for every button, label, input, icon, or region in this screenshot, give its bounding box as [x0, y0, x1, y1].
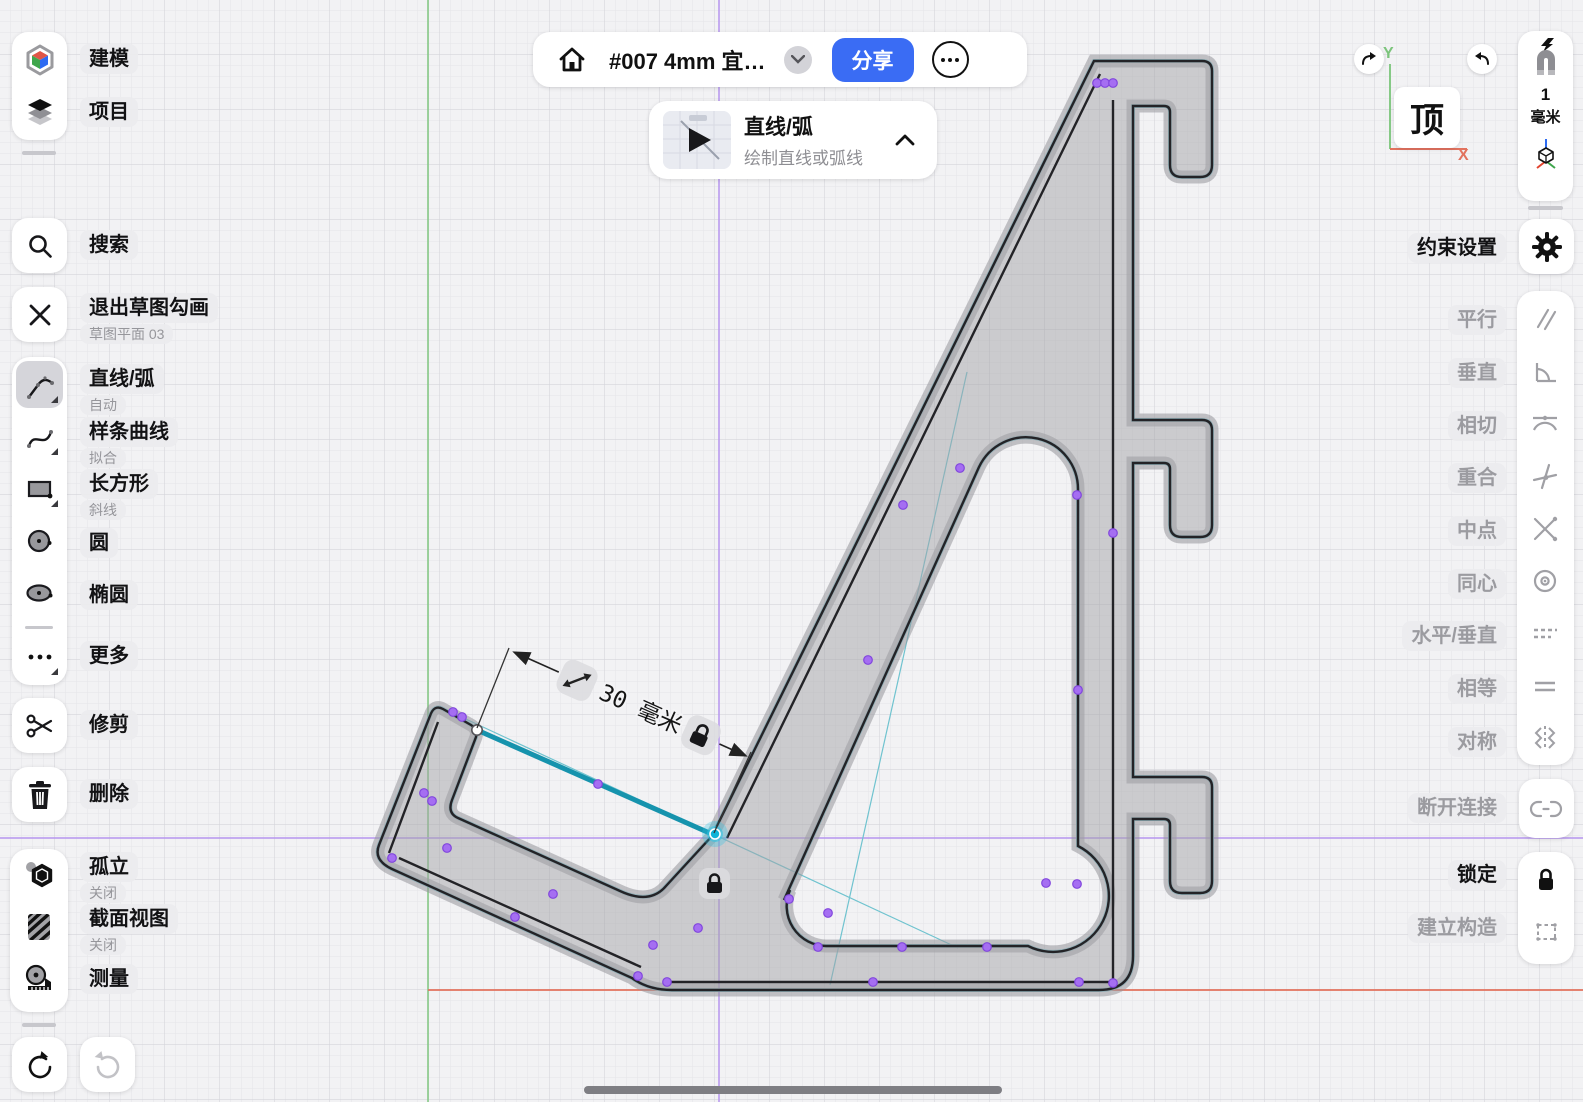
- constraint-label-coincident[interactable]: 重合: [1448, 463, 1506, 493]
- tool-video-thumbnail[interactable]: [663, 111, 731, 169]
- exit-sketch-label: 退出草图勾画: [80, 293, 218, 323]
- collapse-hint-icon[interactable]: [895, 134, 915, 146]
- horizontal-vertical-constraint-icon[interactable]: [1530, 618, 1560, 648]
- trim-button[interactable]: [12, 698, 67, 753]
- line-arc-label: 直线/弧: [80, 364, 164, 394]
- isolate-button[interactable]: [12, 849, 66, 901]
- modeling-label: 建模: [80, 44, 138, 74]
- axis-orientation-icon[interactable]: [1530, 137, 1562, 171]
- rotate-plane-ccw-button[interactable]: [1467, 44, 1497, 74]
- document-title[interactable]: #007 4mm 宜…: [609, 44, 766, 76]
- hint-tool-description: 绘制直线或弧线: [744, 144, 863, 169]
- delete-button[interactable]: [12, 767, 67, 822]
- close-icon: [27, 302, 53, 328]
- constraint-label-symmetric[interactable]: 对称: [1448, 727, 1506, 757]
- line-endpoint-selected[interactable]: [702, 821, 728, 847]
- measure-label: 测量: [80, 964, 138, 994]
- symmetric-constraint-icon[interactable]: [1530, 723, 1560, 753]
- constraint-label-equal[interactable]: 相等: [1448, 674, 1506, 704]
- circle-label: 圆: [80, 528, 118, 558]
- measure-tape-icon: [22, 962, 56, 996]
- rotate-ccw-icon: [1473, 51, 1491, 67]
- concentric-constraint-icon[interactable]: [1530, 566, 1560, 596]
- constraint-label-concentric[interactable]: 同心: [1448, 569, 1506, 599]
- isolate-label-group: 孤立 关闭: [80, 852, 138, 903]
- measure-button[interactable]: [12, 953, 66, 1005]
- isolate-icon: [21, 857, 57, 893]
- construction-label[interactable]: 建立构造: [1408, 913, 1506, 943]
- projects-button[interactable]: [12, 85, 67, 140]
- ellipse-icon: [23, 576, 57, 610]
- more-label: 更多: [80, 641, 138, 671]
- tool-variants-indicator: [51, 668, 58, 675]
- modeling-cube-icon: [22, 42, 58, 78]
- home-icon[interactable]: [557, 45, 587, 75]
- rotate-cw-icon: [1360, 51, 1378, 67]
- gear-icon: [1531, 231, 1563, 263]
- undo-icon: [23, 1048, 57, 1082]
- redo-button[interactable]: [80, 1037, 135, 1092]
- section-view-button[interactable]: [12, 901, 66, 953]
- view-orientation-cube[interactable]: 顶: [1394, 87, 1460, 148]
- rectangle-sublabel: 斜线: [80, 500, 126, 520]
- undo-button[interactable]: [12, 1037, 67, 1092]
- search-icon: [25, 231, 55, 261]
- spline-tool-button[interactable]: [16, 413, 63, 460]
- snap-magnet-icon[interactable]: [1528, 37, 1564, 77]
- title-dropdown-button[interactable]: [784, 46, 812, 74]
- snap-settings-panel: 1 毫米: [1518, 31, 1573, 201]
- spline-label-group: 样条曲线 拟合: [80, 417, 178, 468]
- rectangle-label: 长方形: [80, 469, 158, 499]
- trash-icon: [25, 779, 55, 811]
- spline-label: 样条曲线: [80, 417, 178, 447]
- lock-button[interactable]: [1520, 856, 1572, 904]
- gizmo-x-label: X: [1458, 147, 1469, 164]
- constraint-settings-button[interactable]: [1519, 219, 1574, 274]
- scissors-icon: [24, 710, 56, 742]
- projects-label: 项目: [80, 97, 138, 127]
- disconnect-button[interactable]: [1519, 779, 1574, 838]
- construction-button[interactable]: [1520, 908, 1572, 956]
- rectangle-label-group: 长方形 斜线: [80, 469, 158, 520]
- section-view-state: 关闭: [80, 935, 126, 955]
- constraint-label-tangent[interactable]: 相切: [1448, 411, 1506, 441]
- isolate-label: 孤立: [80, 852, 138, 882]
- share-button[interactable]: 分享: [832, 38, 914, 82]
- tool-variants-indicator: [51, 500, 58, 507]
- line-arc-label-group: 直线/弧 自动: [80, 364, 164, 415]
- more-tools-button[interactable]: [16, 633, 63, 680]
- constraint-label-perpendicular[interactable]: 垂直: [1448, 358, 1506, 388]
- exit-sketch-button[interactable]: [12, 287, 67, 342]
- constraint-label-midpoint[interactable]: 中点: [1448, 516, 1506, 546]
- grid-size-unit: 毫米: [1530, 106, 1560, 127]
- section-label-group: 截面视图 关闭: [80, 904, 178, 955]
- search-label: 搜索: [80, 230, 138, 260]
- tool-variants-indicator: [51, 448, 58, 455]
- more-options-button[interactable]: [932, 41, 969, 78]
- exit-sketch-sublabel: 草图平面 03: [80, 324, 173, 344]
- tool-variants-indicator: [51, 396, 58, 403]
- ellipse-tool-button[interactable]: [16, 569, 63, 616]
- constraint-settings-label-wrap: 约束设置: [1286, 233, 1506, 263]
- chevron-down-icon: [791, 55, 805, 64]
- grid-size-value: 1: [1541, 85, 1550, 105]
- tool-hint-card[interactable]: 直线/弧 绘制直线或弧线: [649, 101, 937, 179]
- lock-icon: [1531, 865, 1561, 895]
- constraint-label-horizontal-vertical[interactable]: 水平/垂直: [1402, 621, 1506, 651]
- modeling-button[interactable]: [12, 32, 67, 87]
- hint-tool-name: 直线/弧: [744, 111, 863, 141]
- parallel-constraint-icon[interactable]: [1530, 303, 1560, 333]
- tangent-constraint-icon[interactable]: [1530, 408, 1560, 438]
- view-orientation-label: 顶: [1410, 93, 1444, 142]
- lock-label[interactable]: 锁定: [1448, 860, 1506, 890]
- top-toolbar: #007 4mm 宜… 分享: [533, 32, 1027, 87]
- constraint-settings-label: 约束设置: [1408, 233, 1506, 263]
- rectangle-tool-button[interactable]: [16, 465, 63, 512]
- perpendicular-constraint-icon[interactable]: [1530, 356, 1560, 386]
- search-button[interactable]: [12, 218, 67, 273]
- constraint-label-parallel[interactable]: 平行: [1448, 305, 1506, 335]
- trim-label: 修剪: [80, 710, 138, 740]
- home-indicator[interactable]: [584, 1086, 1002, 1094]
- disconnect-label[interactable]: 断开连接: [1408, 793, 1506, 823]
- coincident-constraint-icon[interactable]: [1530, 461, 1560, 491]
- sidebar-divider: [22, 151, 56, 155]
- sidebar-divider-bottom: [22, 1023, 56, 1027]
- projects-layers-icon: [22, 95, 58, 131]
- midpoint-constraint-icon[interactable]: [1530, 513, 1560, 543]
- right-divider: [1528, 206, 1563, 210]
- gizmo-y-label: Y: [1383, 45, 1394, 62]
- section-view-icon: [22, 910, 56, 944]
- delete-label: 删除: [80, 779, 138, 809]
- isolate-state: 关闭: [80, 883, 126, 903]
- ellipse-label: 椭圆: [80, 580, 138, 610]
- exit-sketch-label-group: 退出草图勾画 草图平面 03: [80, 293, 218, 344]
- spline-sublabel: 拟合: [80, 448, 126, 468]
- line-arc-tool-button[interactable]: [16, 361, 63, 408]
- line-arc-sublabel: 自动: [80, 395, 126, 415]
- construction-icon: [1531, 917, 1561, 947]
- grid-size-display[interactable]: 1 毫米: [1530, 85, 1560, 127]
- section-view-label: 截面视图: [80, 904, 178, 934]
- rotate-plane-cw-button[interactable]: [1354, 44, 1384, 74]
- disconnect-icon: [1529, 794, 1563, 824]
- circle-tool-button[interactable]: [16, 517, 63, 564]
- redo-icon: [91, 1048, 125, 1082]
- tools-divider: [25, 626, 53, 629]
- constraint-icons-column: [1530, 303, 1560, 753]
- circle-icon: [23, 524, 57, 558]
- line-lock-badge[interactable]: [699, 868, 730, 899]
- equal-constraint-icon[interactable]: [1530, 671, 1560, 701]
